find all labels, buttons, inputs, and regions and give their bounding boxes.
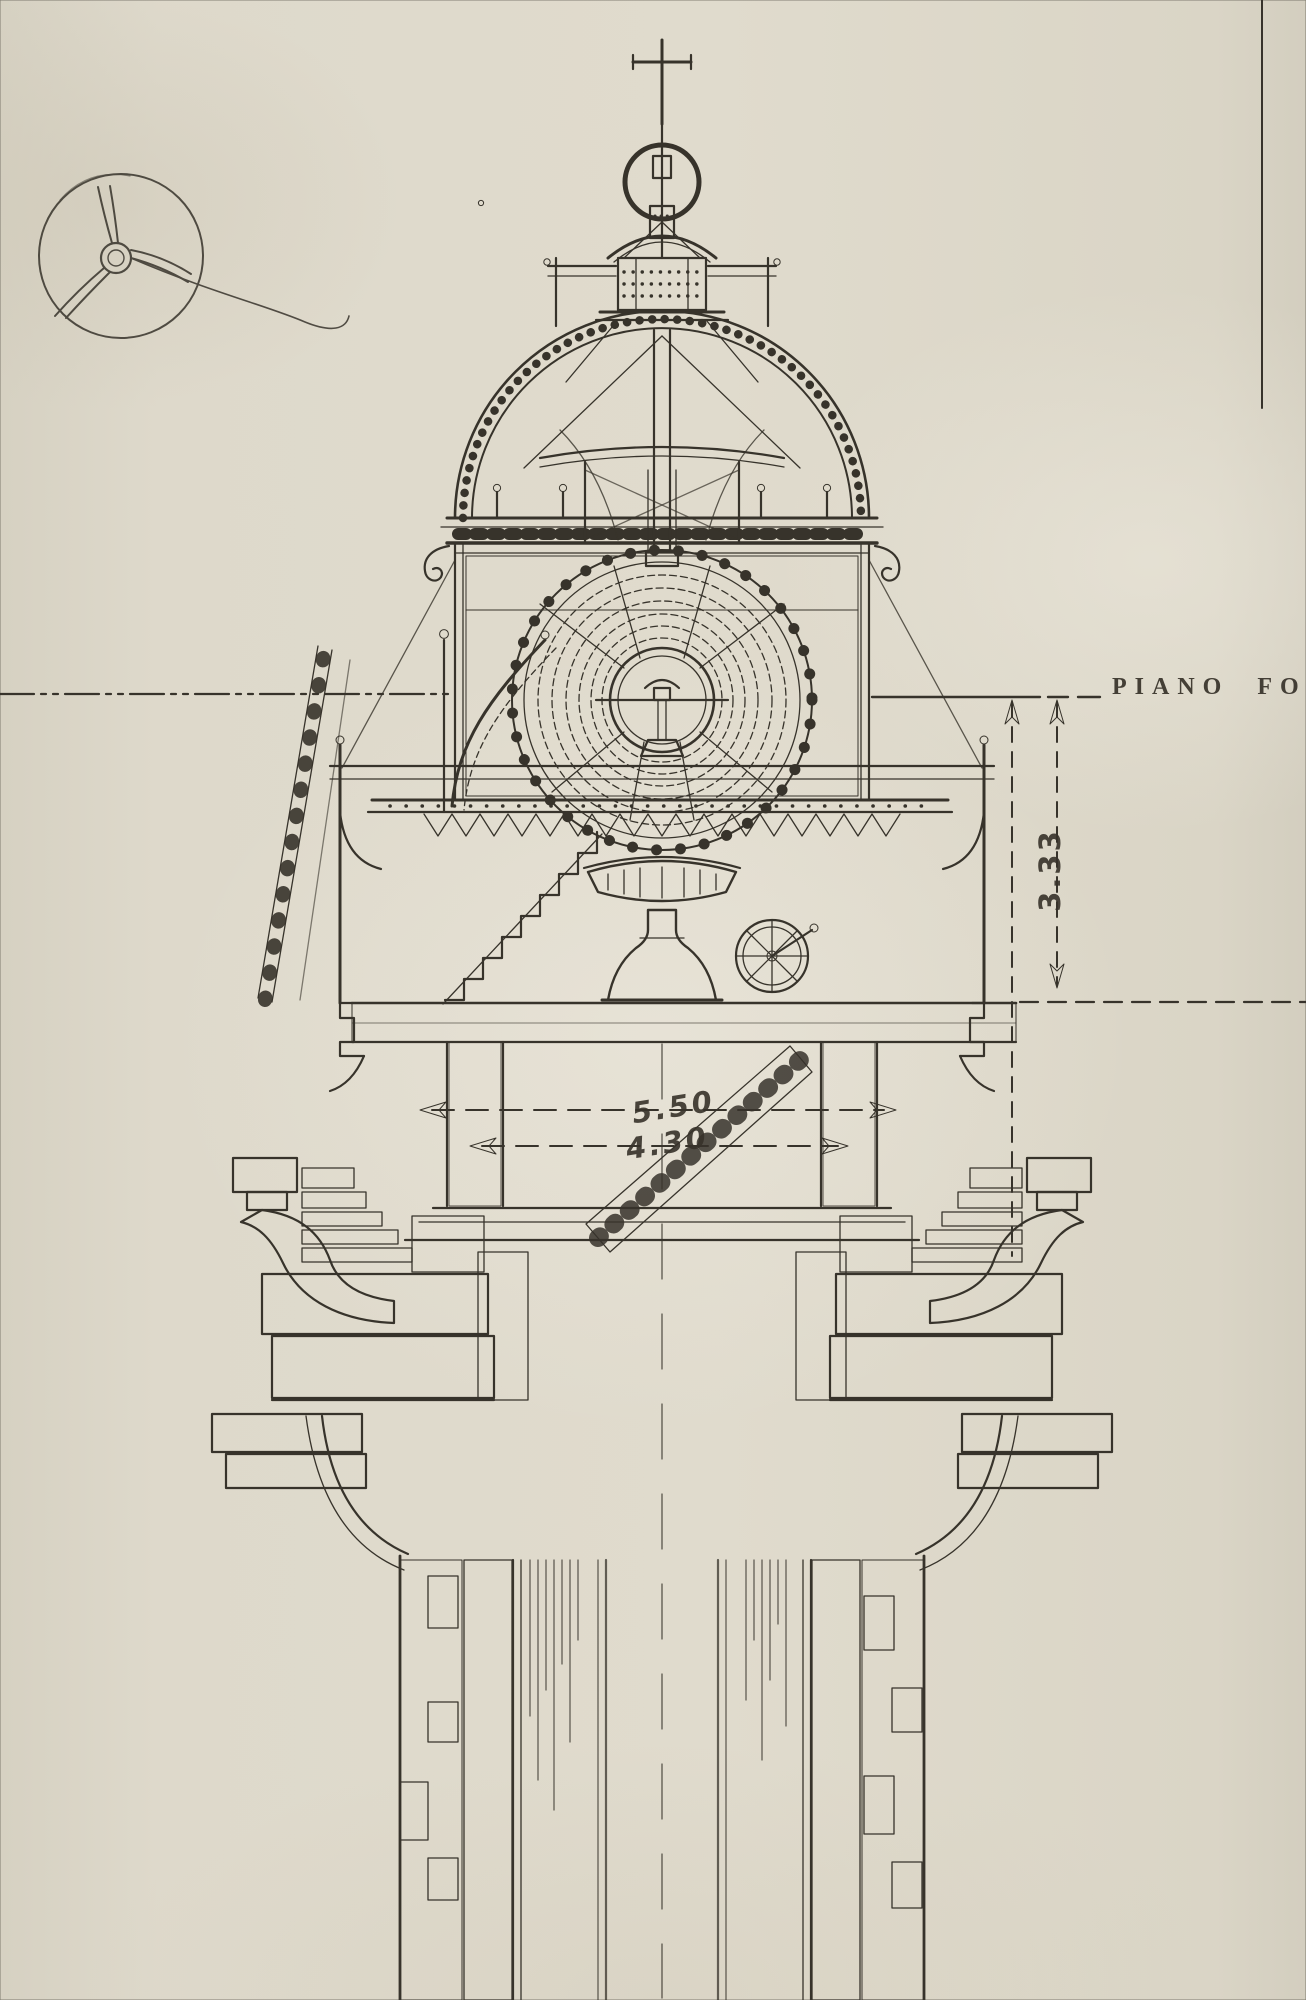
finial xyxy=(624,40,700,258)
fresnel-lens xyxy=(512,550,812,850)
focal-plane-lines xyxy=(0,694,1100,697)
side-ladder xyxy=(258,646,350,1002)
drawing-sheet: PIANO FO 3.33 5.50 4.30 xyxy=(0,0,1306,2000)
dome xyxy=(441,311,883,553)
shaft-inner-shading xyxy=(530,1560,786,2000)
dome-ornament-chain xyxy=(463,319,861,518)
winch-wheel xyxy=(736,920,818,992)
masonry-crosshatch-cells xyxy=(400,1576,922,1908)
deck-truss-fringe xyxy=(424,814,900,836)
dimension-label-3-33: 3.33 xyxy=(1033,815,1063,925)
ink-dot xyxy=(478,200,483,205)
ventilator-drum xyxy=(566,236,758,382)
dimension-lines xyxy=(420,700,1306,1256)
focal-plane-label: PIANO FO xyxy=(1112,674,1306,701)
lighthouse-cross-section-svg xyxy=(0,0,1306,2000)
pencil-propeller-sketch xyxy=(39,174,349,338)
